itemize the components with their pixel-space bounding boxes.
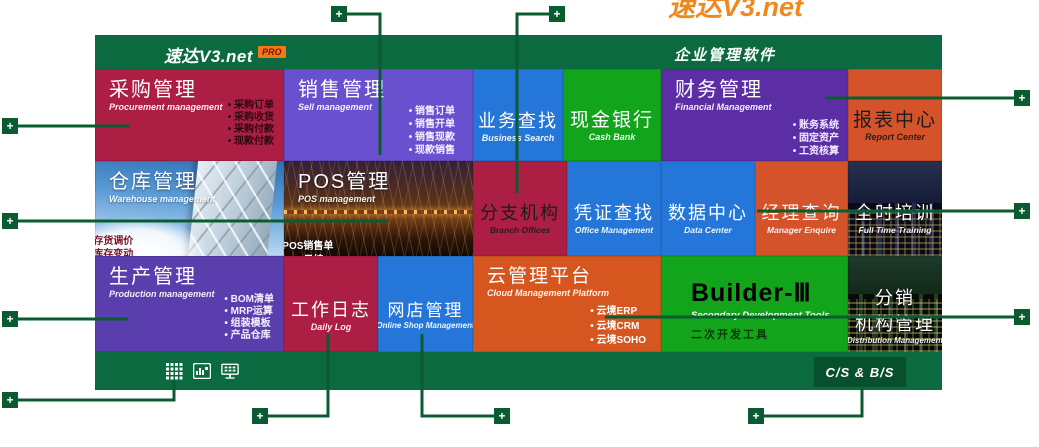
tile-title: 数据中心: [668, 199, 748, 225]
tile-bullet: 云境SOHO: [590, 334, 646, 349]
tile-manager-enquire[interactable]: 经理查询 Manager Enquire: [755, 161, 848, 256]
tile-title: 财务管理: [675, 79, 848, 102]
banner-header: 速达V3.net PRO 企业管理软件: [95, 35, 942, 69]
tile-bullet: 云境CRM: [590, 320, 646, 335]
tile-title: 业务查找: [478, 107, 558, 133]
tile-title: Builder-Ⅲ: [691, 278, 848, 308]
tile-subtitle: POS management: [298, 194, 473, 204]
tile-data-center[interactable]: 数据中心 Data Center: [661, 161, 755, 256]
app-grid-icon[interactable]: [165, 362, 183, 380]
footer-icons: [165, 362, 239, 380]
tile-bullet: 采购付款: [228, 124, 274, 136]
tile-title: 报表中心: [853, 105, 937, 132]
tile-pos[interactable]: POS管理 POS management POS销售单 POS日结 积分调整 积…: [284, 161, 473, 256]
tile-subtitle: Manager Enquire: [767, 225, 836, 235]
tile-online-shop[interactable]: 网店管理 Online Shop Management: [378, 256, 473, 352]
tile-subtitle: Daily Log: [311, 322, 352, 332]
pro-badge: PRO: [258, 46, 286, 58]
tile-subtitle: Secondary Development Tools: [691, 310, 848, 321]
brand-logo: 速达V3.net: [164, 42, 253, 67]
tile-title: 工作日志: [291, 296, 371, 322]
tile-title-line1: 分销: [875, 284, 915, 310]
tile-bullet: MRP运算: [224, 306, 274, 318]
tile-subtitle: Full Time Training: [859, 225, 932, 235]
tile-voucher-search[interactable]: 凭证查找 Office Management: [567, 161, 661, 256]
tile-title: 现金银行: [570, 105, 654, 132]
callout-marker-right-3[interactable]: +: [1014, 309, 1030, 325]
tile-subtitle: Distribution Management: [848, 336, 942, 345]
tile-subtitle: Data Center: [684, 225, 732, 235]
tile-title: POS管理: [298, 171, 473, 194]
tile-bullet: 工资核算: [793, 145, 839, 158]
tile-bullet: 云境ERP: [590, 305, 646, 320]
tile-subtitle: Cloud Management Platform: [487, 288, 661, 298]
report-chart-icon[interactable]: [193, 362, 211, 380]
tile-daily-log[interactable]: 工作日志 Daily Log: [284, 256, 378, 352]
product-banner: 速达V3.net PRO 企业管理软件 采购管理 Procurement man…: [95, 35, 942, 390]
tile-warehouse[interactable]: 仓库管理 Warehouse management 存货调价 库存变动 库存盘点…: [95, 161, 284, 256]
tile-procurement[interactable]: 采购管理 Procurement management 采购订单 采购收货 采购…: [95, 69, 284, 161]
tile-title: 销售管理: [298, 79, 473, 102]
tile-bullet: 销售订单: [409, 105, 455, 118]
tile-bullet: POS销售单: [284, 240, 465, 254]
callout-marker-left-3[interactable]: +: [2, 311, 18, 327]
tile-title-line2: 机构管理: [855, 310, 935, 336]
tile-business-search[interactable]: 业务查找 Business Search: [473, 69, 563, 161]
clipped-brand-text: 速达V3.net: [668, 0, 803, 24]
callout-marker-right-2[interactable]: +: [1014, 203, 1030, 219]
tile-title: 生产管理: [109, 266, 284, 289]
tile-distribution[interactable]: 分销 机构管理 Distribution Management: [848, 256, 942, 352]
tile-title: 采购管理: [109, 79, 284, 102]
tile-production[interactable]: 生产管理 Production management BOM清单 MRP运算 组…: [95, 256, 284, 352]
callout-marker-left-1[interactable]: +: [2, 118, 18, 134]
tile-subtitle: Financial Management: [675, 102, 848, 112]
tile-bullet: 库存变动: [95, 248, 276, 256]
tile-bullet: 采购收货: [228, 112, 274, 124]
tile-cloud-platform[interactable]: 云管理平台 Cloud Management Platform 云境ERP 云境…: [473, 256, 661, 352]
tile-bullet: 销售现款: [409, 131, 455, 144]
callout-marker-bottom-1[interactable]: +: [252, 408, 268, 424]
callout-marker-left-4[interactable]: +: [2, 392, 18, 408]
callout-marker-top-2[interactable]: +: [549, 6, 565, 22]
tile-bullet: 现款销售: [409, 144, 455, 157]
tile-bullet: 存货调价: [95, 235, 276, 248]
tile-bullet: 产品仓库: [224, 330, 274, 342]
tile-branch-offices[interactable]: 分支机构 Branch Offices: [473, 161, 567, 256]
tile-title: 凭证查找: [574, 199, 654, 225]
tile-subtitle: Branch Offices: [490, 225, 550, 235]
tile-sales[interactable]: 销售管理 Sell management 销售订单 销售开单 销售现款 现款销售: [284, 69, 473, 161]
tile-subtitle: Warehouse management: [109, 194, 284, 204]
tile-subtitle: Online Shop Management: [378, 321, 473, 330]
tile-bullet: 现款付款: [228, 136, 274, 148]
page: 速达V3.net 速达V3.net PRO 企业管理软件 采购管理 Procur…: [0, 0, 1039, 447]
tile-title: 经理查询: [762, 199, 842, 225]
cs-bs-badge: C/S & B/S: [814, 357, 906, 387]
product-title: 企业管理软件: [674, 44, 776, 65]
tile-finance[interactable]: 财务管理 Financial Management 账务系统 固定资产 工资核算: [661, 69, 848, 161]
tile-subtitle: Report Center: [865, 132, 925, 142]
tile-full-time-training[interactable]: 全时培训 Full Time Training: [848, 161, 942, 256]
tile-builder[interactable]: Builder-Ⅲ Secondary Development Tools 二次…: [661, 256, 848, 352]
tile-title: 全时培训: [855, 199, 935, 225]
tile-report-center[interactable]: 报表中心 Report Center: [848, 69, 942, 161]
tile-subtitle-cn: 二次开发工具: [691, 326, 848, 342]
callout-marker-bottom-3[interactable]: +: [748, 408, 764, 424]
tile-bullet: POS日结: [284, 254, 465, 257]
tile-title: 云管理平台: [487, 266, 661, 288]
callout-marker-right-1[interactable]: +: [1014, 90, 1030, 106]
tile-cash-bank[interactable]: 现金银行 Cash Bank: [563, 69, 661, 161]
tile-subtitle: Business Search: [482, 133, 555, 143]
tile-bullet: 组装模板: [224, 318, 274, 330]
tile-bullet: 采购订单: [228, 100, 274, 112]
tile-title: 仓库管理: [109, 171, 284, 194]
tile-bullet: 销售开单: [409, 118, 455, 131]
tile-bullet: 账务系统: [793, 119, 839, 132]
callout-marker-bottom-2[interactable]: +: [494, 408, 510, 424]
tile-subtitle: Cash Bank: [589, 132, 636, 142]
network-monitor-icon[interactable]: [221, 362, 239, 380]
tile-title: 网店管理: [388, 296, 464, 321]
callout-marker-top-1[interactable]: +: [331, 6, 347, 22]
tile-title: 分支机构: [480, 199, 560, 225]
tile-bullet: BOM清单: [224, 294, 274, 306]
callout-marker-left-2[interactable]: +: [2, 213, 18, 229]
tile-bullet: 固定资产: [793, 132, 839, 145]
tile-subtitle: Office Management: [575, 225, 653, 235]
